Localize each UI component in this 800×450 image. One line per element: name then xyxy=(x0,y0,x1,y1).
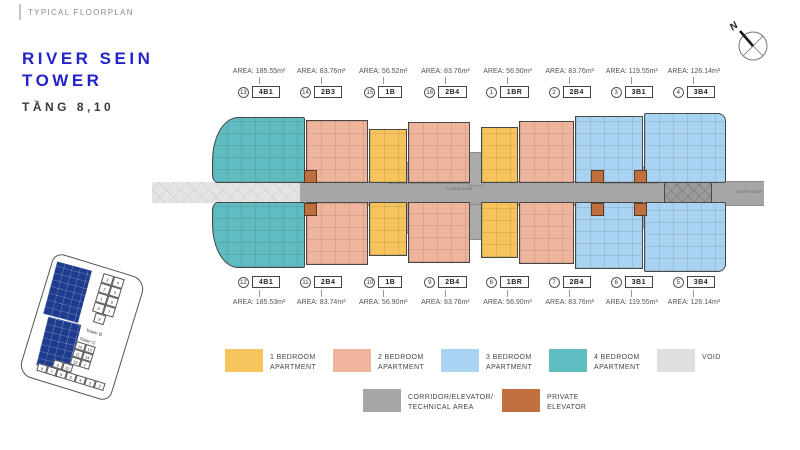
unit-number: 12 xyxy=(238,277,249,288)
unit-number: 4 xyxy=(673,87,684,98)
legend-label: CORRIDOR/ELEVATOR/ TECHNICAL AREA xyxy=(408,393,493,413)
legend-item: 4 BEDROOM APARTMENT xyxy=(549,349,657,373)
legend-swatch xyxy=(549,349,587,372)
tick-line xyxy=(507,290,508,297)
unit-id: 72B4 xyxy=(549,276,591,288)
title-line1: RIVER SEIN xyxy=(22,48,153,70)
tick-line xyxy=(693,77,694,84)
unit-block-3B4 xyxy=(644,113,726,183)
legend-swatch xyxy=(502,389,540,412)
unit-area: AREA: 56.90m² xyxy=(483,299,532,306)
tick-line xyxy=(507,77,508,84)
legend-item: CORRIDOR/ELEVATOR/ TECHNICAL AREA xyxy=(363,389,502,413)
unit-id: 142B3 xyxy=(300,86,342,98)
keyplan-unit: 1 xyxy=(79,359,91,370)
unit-area: AREA: 56.52m² xyxy=(359,68,408,75)
unit-block-2B4 xyxy=(519,202,574,264)
unit-number: 2 xyxy=(549,87,560,98)
unit-code: 2B4 xyxy=(563,86,591,98)
unit-label-3B4: AREA: 126.14m²43B4 xyxy=(663,68,725,98)
site-keyplan: Tower A Tower B Tower C 342516978 121311… xyxy=(17,252,146,402)
unit-id: 124B1 xyxy=(238,276,280,288)
legend-item: VOID xyxy=(657,349,765,373)
tick-line xyxy=(631,77,632,84)
legend-item: 2 BEDROOM APARTMENT xyxy=(333,349,441,373)
unit-block-3B4 xyxy=(644,202,726,272)
unit-area: AREA: 83.76m² xyxy=(545,299,594,306)
unit-id: 53B4 xyxy=(673,276,715,288)
unit-number: 5 xyxy=(673,277,684,288)
unit-label-4B1: 124B1AREA: 185.53m² xyxy=(228,276,290,306)
legend-label: PRIVATE ELEVATOR xyxy=(547,393,586,413)
compass-north-label: N xyxy=(728,20,741,34)
unit-code: 3B4 xyxy=(687,86,715,98)
unit-number: 11 xyxy=(300,277,311,288)
unit-number: 9 xyxy=(424,277,435,288)
unit-number: 16 xyxy=(424,87,435,98)
unit-block-2B4 xyxy=(519,121,574,183)
tick-line xyxy=(631,290,632,297)
unit-label-1B: 101BAREA: 56.90m² xyxy=(352,276,414,306)
legend-item: 3 BEDROOM APARTMENT xyxy=(441,349,549,373)
tick-line xyxy=(383,77,384,84)
unit-block-4B1 xyxy=(212,202,305,268)
unit-code: 3B1 xyxy=(625,86,653,98)
unit-label-1BR: 81BRAREA: 56.90m² xyxy=(477,276,539,306)
private-elevator xyxy=(304,170,317,183)
unit-block-1B xyxy=(369,129,407,183)
legend-label: 2 BEDROOM APARTMENT xyxy=(378,353,424,373)
keyplan-tower-b-label: Tower B xyxy=(86,328,103,338)
unit-block-1BR xyxy=(481,127,518,183)
top-unit-labels: AREA: 185.55m²134B1AREA: 83.76m²142B3ARE… xyxy=(228,68,725,98)
header-accent-line xyxy=(19,4,21,20)
corridor-label-right: CORRIDOR xyxy=(736,189,763,194)
unit-label-2B4: 72B4AREA: 83.76m² xyxy=(539,276,601,306)
private-elevator xyxy=(591,170,604,183)
unit-number: 14 xyxy=(300,87,311,98)
legend-swatch xyxy=(657,349,695,372)
title-line2: TOWER xyxy=(22,70,153,92)
unit-number: 13 xyxy=(238,87,249,98)
unit-id: 11BR xyxy=(486,86,530,98)
legend-label: 3 BEDROOM APARTMENT xyxy=(486,353,532,373)
private-elevator xyxy=(634,203,647,216)
tick-line xyxy=(569,290,570,297)
legend-label: 1 BEDROOM APARTMENT xyxy=(270,353,316,373)
legend-swatch xyxy=(225,349,263,372)
unit-number: 7 xyxy=(549,277,560,288)
page-eyebrow: TYPICAL FLOORPLAN xyxy=(28,8,134,17)
unit-id: 134B1 xyxy=(238,86,280,98)
tick-line xyxy=(383,290,384,297)
unit-code: 4B1 xyxy=(252,276,280,288)
floor-label: TẦNG 8,10 xyxy=(22,100,114,114)
legend-item: 1 BEDROOM APARTMENT xyxy=(225,349,333,373)
unit-area: AREA: 119.55m² xyxy=(606,68,658,75)
private-elevator xyxy=(591,203,604,216)
unit-id: 63B1 xyxy=(611,276,653,288)
unit-label-4B1: AREA: 185.55m²134B1 xyxy=(228,68,290,98)
unit-code: 2B3 xyxy=(314,86,342,98)
legend-label: 4 BEDROOM APARTMENT xyxy=(594,353,640,373)
unit-label-3B1: AREA: 119.55m²33B1 xyxy=(601,68,663,98)
unit-code: 1BR xyxy=(500,86,530,98)
corridor-label: CORRIDOR xyxy=(446,186,473,191)
unit-code: 2B4 xyxy=(438,86,466,98)
unit-number: 15 xyxy=(364,87,375,98)
unit-area: AREA: 119.55m² xyxy=(606,299,658,306)
unit-id: 101B xyxy=(364,276,402,288)
unit-id: 92B4 xyxy=(424,276,466,288)
legend-swatch xyxy=(363,389,401,412)
unit-area: AREA: 83.76m² xyxy=(421,299,470,306)
unit-id: 43B4 xyxy=(673,86,715,98)
unit-number: 1 xyxy=(486,87,497,98)
unit-area: AREA: 185.55m² xyxy=(233,68,286,75)
unit-number: 3 xyxy=(611,87,622,98)
tick-line xyxy=(693,290,694,297)
bottom-unit-labels: 124B1AREA: 185.53m²112B4AREA: 83.74m²101… xyxy=(228,276,725,306)
unit-area: AREA: 56.90m² xyxy=(359,299,408,306)
unit-label-2B4: 112B4AREA: 83.74m² xyxy=(290,276,352,306)
unit-code: 1BR xyxy=(500,276,530,288)
tick-line xyxy=(259,290,260,297)
unit-block-2B4 xyxy=(408,122,470,183)
legend-item: PRIVATE ELEVATOR xyxy=(502,389,641,413)
unit-label-3B4: 53B4AREA: 126.14m² xyxy=(663,276,725,306)
tick-line xyxy=(445,77,446,84)
unit-code: 2B4 xyxy=(314,276,342,288)
page-title: RIVER SEIN TOWER xyxy=(22,48,153,92)
unit-label-3B1: 63B1AREA: 119.55m² xyxy=(601,276,663,306)
unit-area: AREA: 126.14m² xyxy=(668,68,721,75)
unit-block-3B1 xyxy=(575,202,643,269)
unit-label-2B4: AREA: 83.76m²22B4 xyxy=(539,68,601,98)
tick-line xyxy=(259,77,260,84)
unit-id: 33B1 xyxy=(611,86,653,98)
unit-label-2B4: 92B4AREA: 83.76m² xyxy=(414,276,476,306)
floorplan-page: TYPICAL FLOORPLAN RIVER SEIN TOWER TẦNG … xyxy=(0,0,800,450)
legend-row-1: 1 BEDROOM APARTMENT2 BEDROOM APARTMENT3 … xyxy=(225,349,765,373)
unit-id: 22B4 xyxy=(549,86,591,98)
legend-swatch xyxy=(333,349,371,372)
unit-area: AREA: 83.76m² xyxy=(421,68,470,75)
unit-number: 8 xyxy=(486,277,497,288)
unit-code: 2B4 xyxy=(438,276,466,288)
unit-code: 1B xyxy=(378,86,402,98)
tick-line xyxy=(445,290,446,297)
unit-code: 1B xyxy=(378,276,402,288)
unit-area: AREA: 83.74m² xyxy=(297,299,346,306)
unit-id: 112B4 xyxy=(300,276,342,288)
unit-area: AREA: 83.76m² xyxy=(545,68,594,75)
keyplan-unit: 2 xyxy=(94,380,106,391)
unit-area: AREA: 56.90m² xyxy=(483,68,532,75)
legend-swatch xyxy=(441,349,479,372)
unit-block-4B1 xyxy=(212,117,305,183)
unit-block-3B1 xyxy=(575,116,643,183)
unit-area: AREA: 185.53m² xyxy=(233,299,286,306)
unit-area: AREA: 83.76m² xyxy=(297,68,346,75)
private-elevator xyxy=(304,203,317,216)
unit-label-1B: AREA: 56.52m²151B xyxy=(352,68,414,98)
unit-block-1B xyxy=(369,202,407,256)
unit-number: 6 xyxy=(611,277,622,288)
tick-line xyxy=(321,290,322,297)
unit-code: 4B1 xyxy=(252,86,280,98)
compass-icon: N xyxy=(720,14,786,80)
unit-code: 2B4 xyxy=(563,276,591,288)
unit-area: AREA: 126.14m² xyxy=(668,299,721,306)
keyplan-unit: 8 xyxy=(93,312,106,325)
private-elevator xyxy=(634,170,647,183)
unit-label-1BR: AREA: 56.90m²11BR xyxy=(477,68,539,98)
unit-number: 10 xyxy=(364,277,375,288)
legend-label: VOID xyxy=(702,353,721,363)
unit-label-2B4: AREA: 83.76m²162B4 xyxy=(414,68,476,98)
legend-row-2: CORRIDOR/ELEVATOR/ TECHNICAL AREAPRIVATE… xyxy=(363,389,641,413)
unit-label-2B3: AREA: 83.76m²142B3 xyxy=(290,68,352,98)
unit-id: 151B xyxy=(364,86,402,98)
unit-block-1BR xyxy=(481,202,518,258)
unit-code: 3B4 xyxy=(687,276,715,288)
unit-block-2B4 xyxy=(408,202,470,263)
tick-line xyxy=(321,77,322,84)
unit-id: 81BR xyxy=(486,276,530,288)
unit-code: 3B1 xyxy=(625,276,653,288)
tick-line xyxy=(569,77,570,84)
unit-id: 162B4 xyxy=(424,86,466,98)
keyplan-tower-a-shape xyxy=(43,262,92,323)
